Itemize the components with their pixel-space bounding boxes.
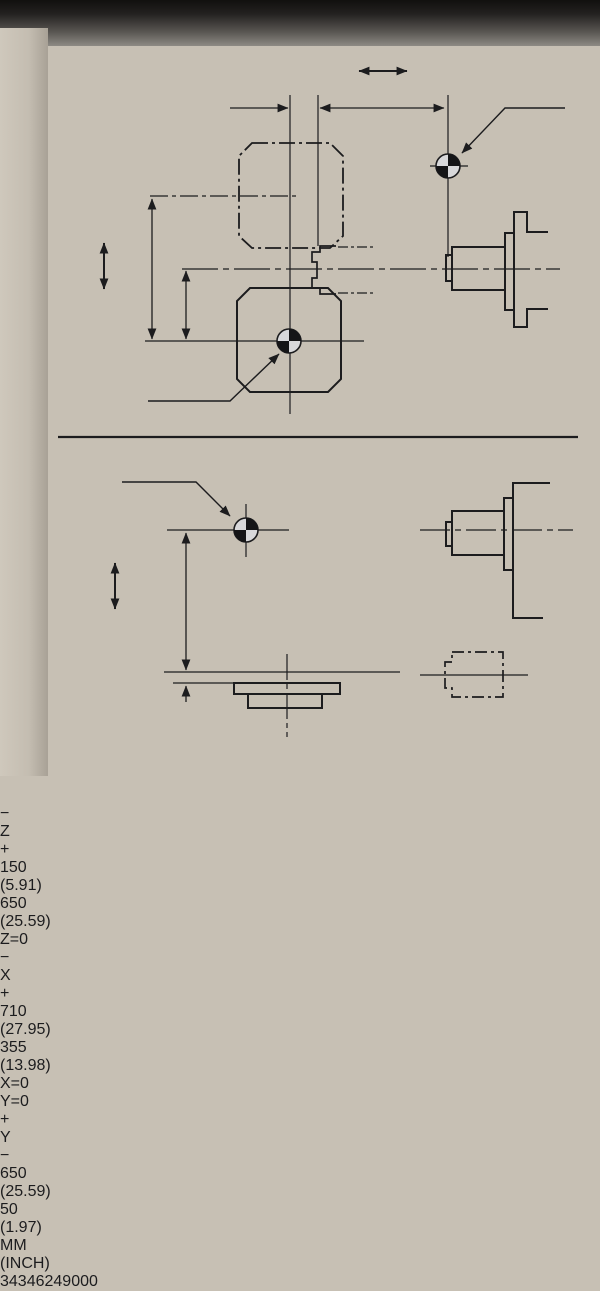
x0-leader-line: [148, 354, 279, 401]
y-diagram: [115, 482, 573, 737]
origin-symbols: [234, 154, 460, 542]
x-plus-sign: +: [0, 985, 600, 1003]
xz-diagram: [104, 71, 565, 414]
dim-150-mm: 150: [0, 859, 600, 877]
units-inch-label: (INCH): [0, 1255, 600, 1273]
dim-50-mm: 50: [0, 1201, 600, 1219]
y-minus-sign: −: [0, 1147, 600, 1165]
dim-710-mm: 710: [0, 1003, 600, 1021]
y-extension-lines: [164, 504, 573, 737]
origin-symbol-z: [436, 154, 460, 178]
tool-holder-centerlines: [338, 247, 374, 293]
spindle-side-view: [446, 483, 550, 618]
machine-panel-right: [586, 30, 600, 776]
y-plus-sign: +: [0, 1111, 600, 1129]
tool-holder-step: [312, 246, 336, 294]
z-axis-label: Z: [0, 823, 600, 841]
machine-panel-left: [0, 28, 48, 776]
z0-label: Z=0: [0, 931, 600, 949]
engraved-diagram: [0, 0, 600, 800]
y0-leader-line: [122, 482, 230, 516]
z0-leader-line: [462, 108, 565, 153]
x-minus-sign: −: [0, 949, 600, 967]
x-axis-label: X: [0, 967, 600, 985]
z-minus-sign: −: [0, 805, 600, 823]
dim-650b-mm: 650: [0, 1165, 600, 1183]
y-axis-label: Y: [0, 1129, 600, 1147]
dim-650-inch: (25.59): [0, 913, 600, 931]
dim-50-inch: (1.97): [0, 1219, 600, 1237]
z-plus-sign: +: [0, 841, 600, 859]
dim-650b-inch: (25.59): [0, 1183, 600, 1201]
x0-label: X=0: [0, 1075, 600, 1093]
xz-extension-lines: [145, 95, 560, 414]
units-mm-label: MM: [0, 1237, 600, 1255]
dim-710-inch: (27.95): [0, 1021, 600, 1039]
dim-650-mm: 650: [0, 895, 600, 913]
y0-label: Y=0: [0, 1093, 600, 1111]
origin-symbol-x: [277, 329, 301, 353]
machine-housing-top: [0, 0, 600, 46]
dim-355-mm: 355: [0, 1039, 600, 1057]
dim-150-inch: (5.91): [0, 877, 600, 895]
origin-symbol-y: [234, 518, 258, 542]
plate-part-number: 34346249000: [0, 1273, 600, 1291]
xz-dimension-lines: [152, 108, 444, 339]
dim-355-inch: (13.98): [0, 1057, 600, 1075]
